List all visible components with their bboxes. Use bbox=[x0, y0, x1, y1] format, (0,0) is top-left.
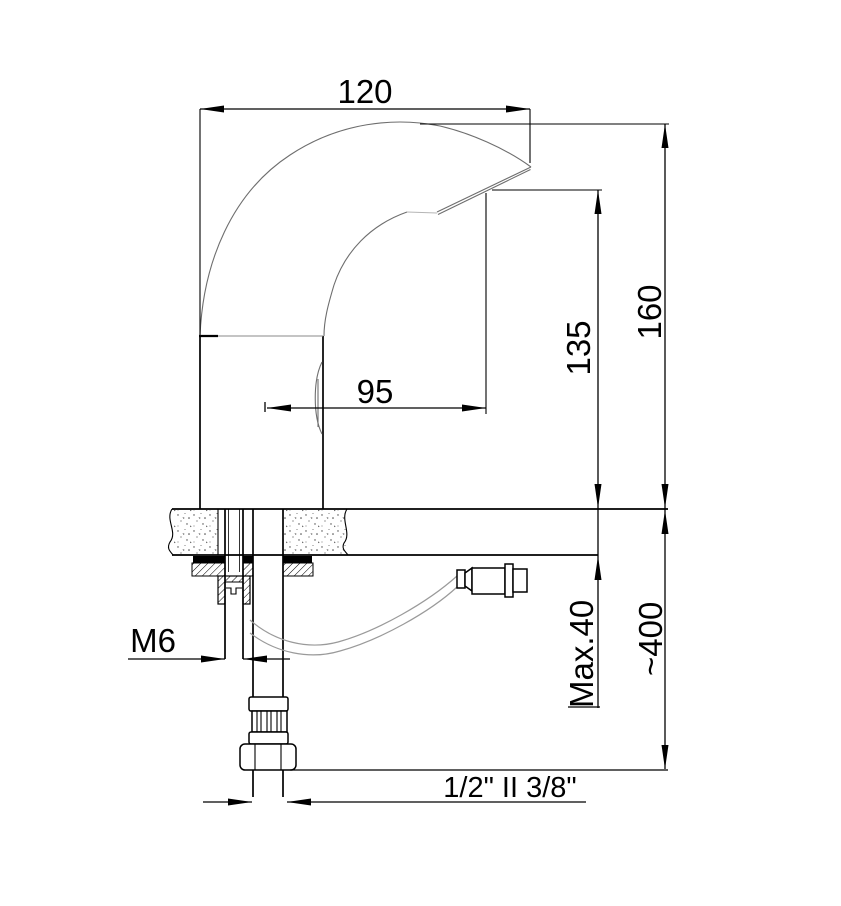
cable-connector bbox=[457, 564, 527, 597]
drawing-canvas: 120 160 ~400 135 Max.40 95 bbox=[0, 0, 841, 906]
countertop-section-left bbox=[174, 510, 218, 555]
fixing-nut bbox=[218, 576, 250, 606]
connector-flange bbox=[505, 564, 513, 597]
sensor-window bbox=[315, 362, 322, 434]
sensor-window-arc bbox=[315, 362, 322, 434]
dim-m6-label: M6 bbox=[130, 622, 176, 659]
arrow-right bbox=[506, 106, 530, 113]
connector-body bbox=[472, 568, 505, 594]
arrow-right-pointing bbox=[201, 656, 225, 663]
arrow-top bbox=[595, 190, 602, 214]
faucet-body bbox=[199, 336, 323, 509]
compression-fitting bbox=[240, 697, 296, 797]
dimension-400: ~400 bbox=[290, 510, 669, 770]
arrow-bottom bbox=[595, 484, 602, 508]
gasket-left bbox=[193, 556, 225, 563]
connector-neck bbox=[465, 568, 472, 591]
dim-135-label: 135 bbox=[560, 320, 597, 375]
arrow-left-pointing bbox=[287, 799, 311, 806]
dimension-120: 120 bbox=[200, 73, 530, 336]
knurled-nut bbox=[252, 711, 287, 732]
arrow-right-pointing bbox=[228, 799, 252, 806]
arrow-up bbox=[595, 556, 602, 580]
arrow-left bbox=[267, 405, 291, 412]
washer-right bbox=[283, 563, 313, 576]
countertop-section-right bbox=[283, 510, 346, 555]
technical-drawing: 120 160 ~400 135 Max.40 95 bbox=[0, 0, 841, 906]
arrow-left bbox=[200, 106, 224, 113]
pipe-stub bbox=[253, 770, 283, 797]
dim-95-label: 95 bbox=[357, 373, 394, 410]
dim-160-label: 160 bbox=[631, 284, 668, 339]
arrow-bottom bbox=[662, 484, 669, 508]
spout-underside-flat bbox=[407, 212, 437, 213]
connector-tip bbox=[513, 569, 527, 592]
dim-120-label: 120 bbox=[337, 73, 392, 110]
fitting-collar-upper bbox=[249, 697, 288, 711]
dimension-95: 95 bbox=[265, 193, 486, 414]
arrow-top bbox=[662, 124, 669, 148]
fitting-collar-lower bbox=[249, 732, 288, 744]
arrow-bottom bbox=[662, 745, 669, 769]
supply-pipe bbox=[253, 509, 283, 697]
spout-lip-inner bbox=[438, 170, 531, 215]
dimension-max40: Max.40 bbox=[563, 556, 602, 708]
washer-middle bbox=[243, 563, 253, 576]
countertop-break-left bbox=[168, 509, 173, 555]
dimension-m6: M6 bbox=[128, 622, 290, 663]
arrow-top bbox=[662, 510, 669, 534]
dim-max40-label: Max.40 bbox=[563, 600, 600, 708]
hex-nut bbox=[240, 744, 296, 770]
spout-underside-curve bbox=[324, 212, 407, 336]
sensor-cable bbox=[250, 576, 457, 655]
gasket-middle bbox=[243, 556, 253, 563]
dim-connection-label: 1/2" II 3/8" bbox=[443, 772, 576, 804]
dim-400-label: ~400 bbox=[632, 602, 669, 676]
arrow-right bbox=[462, 405, 486, 412]
dimension-connection: 1/2" II 3/8" bbox=[203, 772, 586, 806]
washer-left bbox=[192, 563, 225, 576]
gasket-right bbox=[283, 556, 312, 563]
spout-outer-curve bbox=[200, 122, 531, 336]
faucet-spout bbox=[200, 122, 531, 336]
connector-tail-ring bbox=[457, 570, 465, 588]
